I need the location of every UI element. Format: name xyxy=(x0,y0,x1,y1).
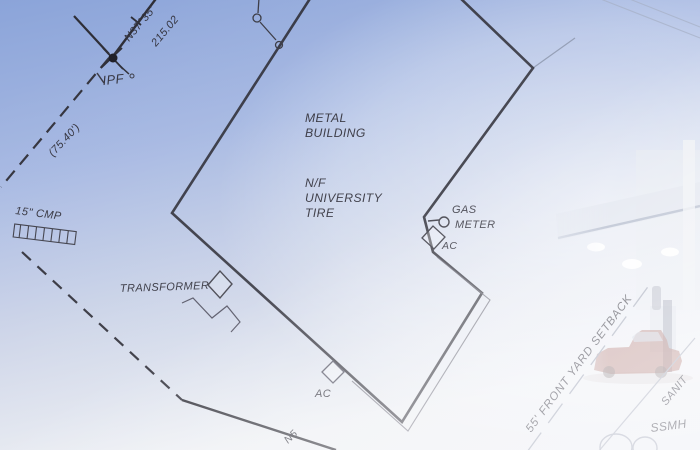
fade-overlay xyxy=(0,0,700,450)
site-plan-drawing: N37°35' 215.02 IPF (75.40') 15" CMP META… xyxy=(0,0,700,450)
site-plan-canvas: N37°35' 215.02 IPF (75.40') 15" CMP META… xyxy=(0,0,700,450)
